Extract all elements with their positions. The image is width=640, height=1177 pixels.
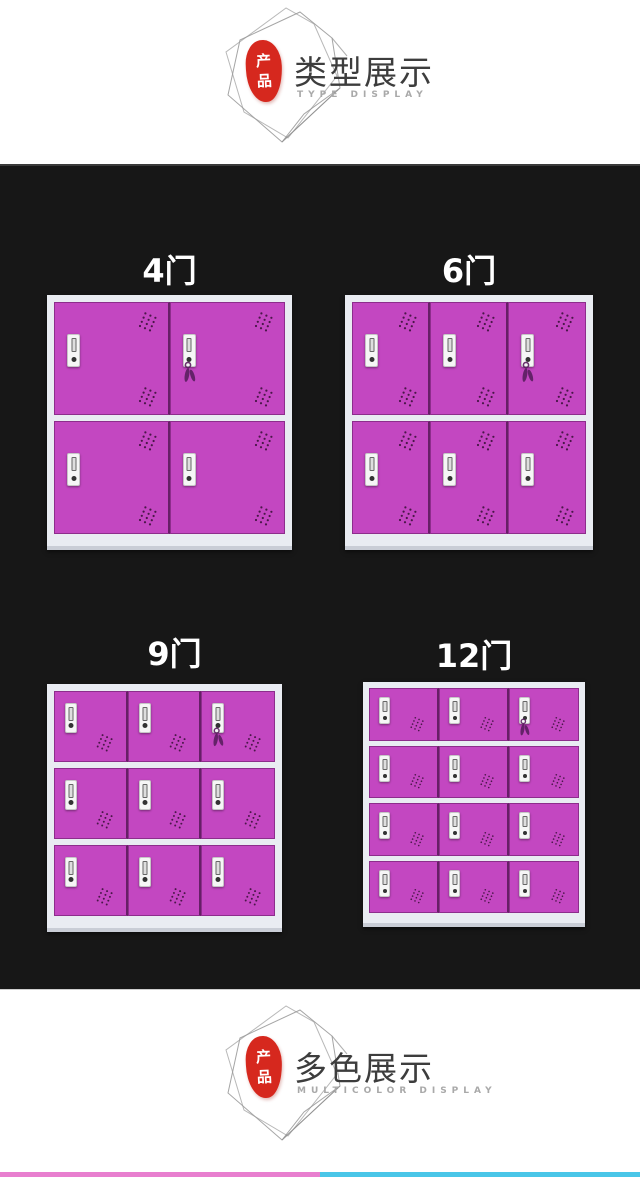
keyhole	[525, 476, 530, 481]
vent-holes	[168, 886, 186, 906]
keyhole	[187, 476, 192, 481]
door-handle	[65, 703, 77, 733]
product-detail-page: 产 品 类型展示 TYPE DISPLAY 4门 6门 9门 12门 产 品 多…	[0, 0, 640, 1177]
vent-holes	[550, 887, 565, 904]
locker-door	[439, 803, 509, 856]
keyhole	[523, 774, 527, 778]
door-handle	[519, 755, 530, 782]
locker-door	[369, 688, 439, 741]
door-handle	[449, 755, 460, 782]
accent-bar-cyan	[320, 1172, 640, 1177]
seal-char-top: 产	[256, 1047, 272, 1066]
keyhole	[69, 723, 74, 728]
locker-12-door-label: 12门	[363, 631, 585, 677]
locker-door	[369, 803, 439, 856]
locker-4-door-label: 4门	[47, 246, 292, 292]
handle-slot	[522, 759, 527, 770]
locker-door	[201, 845, 275, 916]
locker-door	[508, 421, 586, 534]
handle-slot	[452, 701, 457, 712]
vent-holes-bottom	[137, 385, 157, 407]
keyhole	[523, 831, 527, 835]
vent-holes	[409, 887, 424, 904]
keyhole	[383, 831, 387, 835]
handle-slot	[452, 759, 457, 770]
handle-slot	[216, 707, 221, 721]
door-handle	[379, 812, 390, 839]
door-handle	[65, 857, 77, 887]
hanging-keys-icon	[182, 361, 198, 385]
seal-char-bottom: 品	[257, 71, 273, 90]
keyhole	[453, 889, 457, 893]
handle-slot	[382, 701, 387, 712]
vent-holes	[243, 809, 261, 829]
keyhole	[142, 800, 147, 805]
handle-slot	[71, 338, 76, 352]
handle-slot	[216, 861, 221, 875]
hanging-keys-icon	[518, 718, 532, 738]
door-handle	[65, 780, 77, 810]
locker-door	[430, 421, 508, 534]
door-handle	[183, 453, 196, 486]
vent-holes-top	[137, 429, 157, 451]
keyhole	[216, 800, 221, 805]
locker-door	[54, 845, 128, 916]
vent-holes	[168, 732, 186, 752]
vent-holes-top	[475, 429, 495, 451]
locker-door	[509, 688, 579, 741]
vent-holes	[168, 809, 186, 829]
handle-slot	[369, 338, 374, 352]
locker-door	[352, 421, 430, 534]
vent-holes-bottom	[137, 504, 157, 526]
locker-door	[170, 302, 286, 415]
handle-slot	[69, 707, 74, 721]
keyhole	[369, 357, 374, 362]
handle-slot	[382, 816, 387, 827]
vent-holes-bottom	[554, 504, 574, 526]
locker-door	[128, 768, 202, 839]
locker-types-section: 4门 6门 9门 12门	[0, 164, 640, 990]
keyhole	[369, 476, 374, 481]
vent-holes-top	[397, 310, 417, 332]
door-handle	[67, 453, 80, 486]
door-grid	[54, 302, 285, 534]
locker-door	[508, 302, 586, 415]
vent-holes	[409, 830, 424, 847]
door-handle	[379, 870, 390, 897]
door-grid	[369, 688, 579, 913]
vent-holes	[550, 715, 565, 732]
locker-9-door-image	[47, 684, 282, 932]
locker-door	[54, 691, 128, 762]
door-grid	[352, 302, 586, 534]
keyhole	[453, 716, 457, 720]
door-handle	[519, 870, 530, 897]
door-handle	[443, 334, 456, 367]
multicolor-display-banner: 产 品 多色展示 MULTICOLOR DISPLAY	[0, 990, 640, 1177]
handle-slot	[369, 457, 374, 471]
locker-9-door-label: 9门	[52, 629, 297, 675]
vent-holes-top	[253, 429, 273, 451]
handle-slot	[447, 338, 452, 352]
handle-slot	[216, 784, 221, 798]
door-grid	[54, 691, 275, 916]
door-handle	[519, 812, 530, 839]
door-handle	[212, 780, 224, 810]
vent-holes-bottom	[253, 385, 273, 407]
locker-door	[54, 302, 170, 415]
type-display-title: 类型展示	[294, 46, 434, 94]
multicolor-display-title: 多色展示	[294, 1042, 434, 1090]
locker-door	[352, 302, 430, 415]
door-handle	[443, 453, 456, 486]
vent-holes-bottom	[554, 385, 574, 407]
handle-slot	[447, 457, 452, 471]
locker-door	[439, 688, 509, 741]
handle-slot	[522, 816, 527, 827]
vent-holes	[479, 887, 494, 904]
handle-slot	[382, 874, 387, 885]
seal-char-top: 产	[256, 51, 272, 70]
keyhole	[69, 800, 74, 805]
vent-holes-bottom	[253, 504, 273, 526]
locker-door	[128, 691, 202, 762]
vent-holes-top	[475, 310, 495, 332]
keyhole	[523, 889, 527, 893]
vent-holes-top	[137, 310, 157, 332]
locker-door	[439, 746, 509, 799]
handle-slot	[187, 457, 192, 471]
handle-slot	[142, 784, 147, 798]
locker-door	[54, 768, 128, 839]
door-handle	[449, 812, 460, 839]
locker-door	[369, 861, 439, 914]
vent-holes	[95, 809, 113, 829]
vent-holes	[243, 732, 261, 752]
door-handle	[212, 857, 224, 887]
door-handle	[365, 334, 378, 367]
keyhole	[142, 877, 147, 882]
keyhole	[142, 723, 147, 728]
vent-holes-bottom	[397, 504, 417, 526]
vent-holes-bottom	[397, 385, 417, 407]
vent-holes	[243, 886, 261, 906]
door-handle	[67, 334, 80, 367]
locker-door	[54, 421, 170, 534]
handle-slot	[525, 457, 530, 471]
vent-holes	[550, 830, 565, 847]
door-handle	[379, 697, 390, 724]
vent-holes	[479, 772, 494, 789]
handle-slot	[69, 784, 74, 798]
seal-char-bottom: 品	[257, 1067, 273, 1086]
door-handle	[449, 870, 460, 897]
keyhole	[71, 476, 76, 481]
hanging-keys-icon	[211, 727, 226, 749]
door-handle	[139, 857, 151, 887]
vent-holes	[95, 886, 113, 906]
type-display-subtitle: TYPE DISPLAY	[297, 90, 428, 100]
vent-holes-bottom	[475, 504, 495, 526]
locker-door	[369, 746, 439, 799]
keyhole	[383, 716, 387, 720]
vent-holes-top	[554, 310, 574, 332]
accent-bar-pink	[0, 1172, 320, 1177]
vent-holes	[95, 732, 113, 752]
locker-door	[509, 803, 579, 856]
locker-door	[509, 746, 579, 799]
locker-door	[128, 845, 202, 916]
keyhole	[69, 877, 74, 882]
handle-slot	[522, 701, 527, 712]
handle-slot	[452, 816, 457, 827]
keyhole	[383, 889, 387, 893]
locker-6-door-image	[345, 295, 593, 550]
vent-holes-top	[554, 429, 574, 451]
vent-holes	[479, 830, 494, 847]
locker-6-door-label: 6门	[345, 246, 593, 292]
bottom-accent-bar	[0, 1172, 640, 1177]
door-handle	[521, 453, 534, 486]
handle-slot	[142, 707, 147, 721]
keyhole	[71, 357, 76, 362]
locker-12-door-image	[363, 682, 585, 927]
keyhole	[447, 476, 452, 481]
handle-slot	[522, 874, 527, 885]
locker-door	[509, 861, 579, 914]
vent-holes	[409, 715, 424, 732]
door-handle	[139, 780, 151, 810]
handle-slot	[525, 338, 530, 352]
vent-holes-bottom	[475, 385, 495, 407]
keyhole	[453, 774, 457, 778]
locker-door	[201, 768, 275, 839]
vent-holes	[479, 715, 494, 732]
keyhole	[447, 357, 452, 362]
handle-slot	[71, 457, 76, 471]
vent-holes	[409, 772, 424, 789]
locker-door	[201, 691, 275, 762]
locker-door	[430, 302, 508, 415]
handle-slot	[142, 861, 147, 875]
locker-door	[170, 421, 286, 534]
multicolor-display-subtitle: MULTICOLOR DISPLAY	[297, 1086, 497, 1096]
door-handle	[449, 697, 460, 724]
type-display-banner: 产 品 类型展示 TYPE DISPLAY	[0, 0, 640, 164]
door-handle	[379, 755, 390, 782]
door-handle	[365, 453, 378, 486]
handle-slot	[382, 759, 387, 770]
handle-slot	[69, 861, 74, 875]
keyhole	[216, 877, 221, 882]
keyhole	[453, 831, 457, 835]
vent-holes-top	[253, 310, 273, 332]
vent-holes	[550, 772, 565, 789]
door-handle	[139, 703, 151, 733]
handle-slot	[187, 338, 192, 352]
vent-holes-top	[397, 429, 417, 451]
keyhole	[383, 774, 387, 778]
handle-slot	[452, 874, 457, 885]
locker-4-door-image	[47, 295, 292, 550]
hanging-keys-icon	[520, 361, 536, 385]
locker-door	[439, 861, 509, 914]
